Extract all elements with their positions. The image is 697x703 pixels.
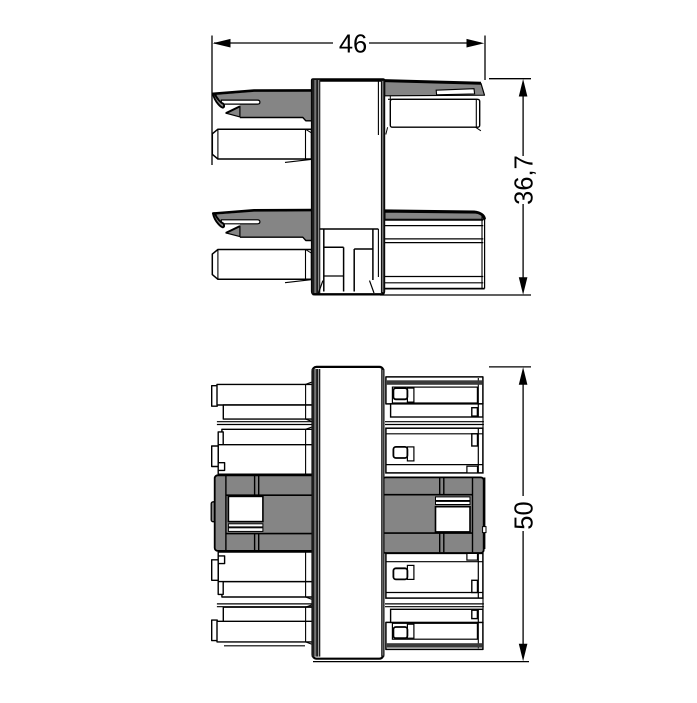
svg-text:50: 50 — [510, 501, 538, 529]
svg-text:46: 46 — [339, 31, 367, 59]
svg-text:36,7: 36,7 — [510, 155, 538, 205]
